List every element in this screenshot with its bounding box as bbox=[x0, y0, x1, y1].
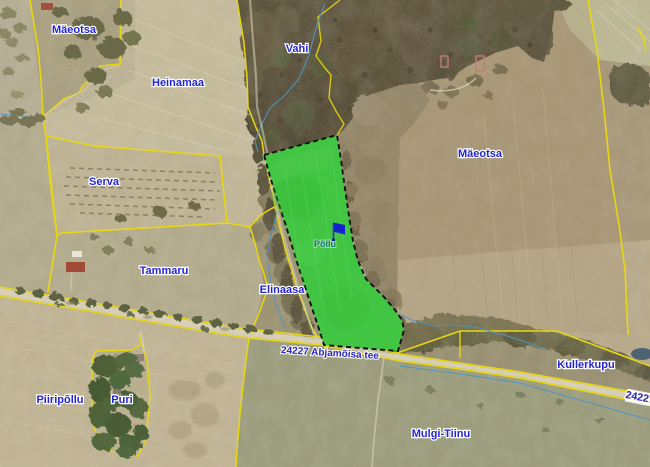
svg-text:Elinaasa: Elinaasa bbox=[260, 284, 306, 296]
svg-text:Mulgi-Tiinu: Mulgi-Tiinu bbox=[412, 428, 470, 440]
svg-text:Tammaru: Tammaru bbox=[140, 265, 189, 277]
svg-text:Serva: Serva bbox=[89, 176, 120, 188]
svg-text:Põllu: Põllu bbox=[314, 239, 336, 249]
svg-text:Piiripõllu: Piiripõllu bbox=[36, 394, 83, 406]
svg-text:Vahi: Vahi bbox=[286, 43, 309, 55]
svg-text:Kullerkupu: Kullerkupu bbox=[557, 359, 614, 371]
svg-text:Mäeotsa: Mäeotsa bbox=[458, 148, 503, 160]
svg-text:Heinamaa: Heinamaa bbox=[152, 77, 205, 89]
svg-text:Puri: Puri bbox=[111, 394, 132, 406]
svg-text:Mäeotsa: Mäeotsa bbox=[52, 24, 97, 36]
